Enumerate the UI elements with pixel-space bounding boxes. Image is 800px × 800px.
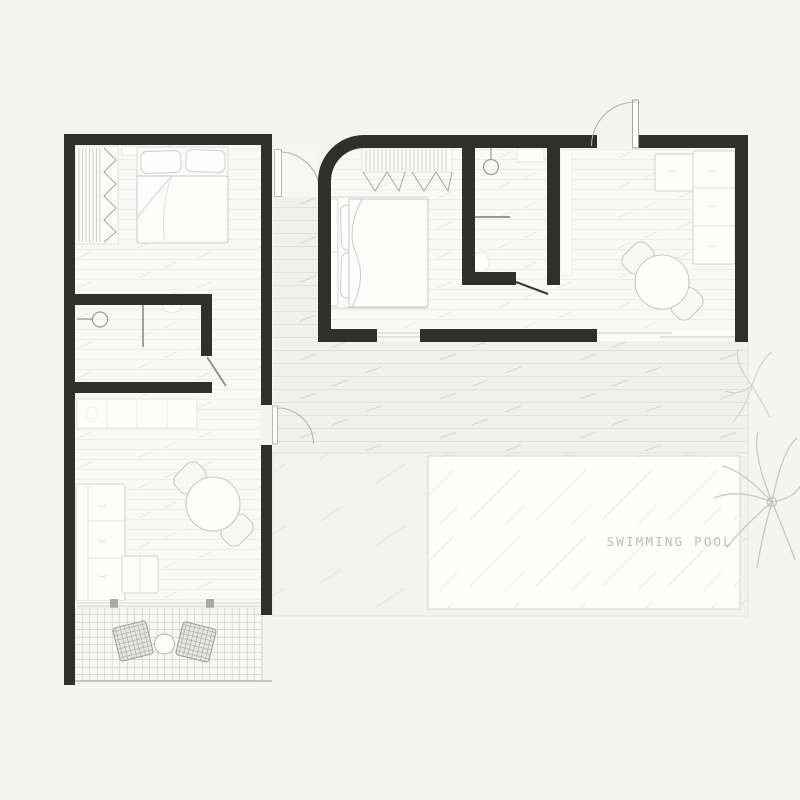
entrance-door <box>592 100 639 148</box>
pillow <box>141 150 182 173</box>
wall-bottom-seg <box>420 329 597 342</box>
rattan-chair <box>112 620 153 661</box>
right-wing <box>318 100 748 342</box>
bathroom-wall-right <box>201 294 212 356</box>
duvet <box>349 199 428 307</box>
round-dining-table <box>186 477 240 531</box>
hanging-clothes-lines <box>366 149 446 171</box>
bathroom-wall-right <box>547 148 560 285</box>
door-opening <box>597 134 637 148</box>
pool-terrace: SWIMMING POOL <box>273 450 748 616</box>
wall-right-lower <box>261 445 272 615</box>
floor-plan-canvas: SWIMMING POOL <box>0 0 800 800</box>
washbasin <box>517 149 544 162</box>
tall-cabinet <box>560 150 572 275</box>
wall-top <box>64 134 272 145</box>
sofa-body <box>693 151 735 264</box>
left-bedroom-wardrobe <box>75 146 118 244</box>
round-dining-table <box>635 255 689 309</box>
wall-corner-block <box>735 329 748 342</box>
pillow <box>186 149 226 172</box>
wall-left <box>318 181 331 342</box>
bathroom-wall-left <box>462 148 475 285</box>
bathroom-wall-top <box>75 294 212 305</box>
wall-bottom-seg <box>318 329 377 342</box>
wall-top-left-seg <box>362 135 597 148</box>
bathroom-wall-bottom <box>75 382 212 393</box>
wall-top-right-seg <box>637 135 748 148</box>
kitchen-counter <box>77 399 197 428</box>
wall-right-upper <box>261 134 272 405</box>
rattan-chair <box>175 621 216 662</box>
swimming-pool-label: SWIMMING POOL <box>607 534 733 549</box>
right-bedroom-bed <box>325 197 428 308</box>
swimming-pool <box>428 456 740 609</box>
sofa-chaise <box>655 154 693 191</box>
wall-right <box>735 135 748 342</box>
bathroom-wall-bottom <box>462 272 516 285</box>
door-leaf <box>273 406 278 444</box>
hanging-clothes-lines <box>79 148 100 242</box>
door-leaf <box>275 150 282 197</box>
window-mullion <box>206 599 214 608</box>
window-mullion <box>110 599 118 608</box>
toilet <box>473 252 489 272</box>
door-leaf <box>633 100 639 148</box>
patio <box>75 608 272 681</box>
wall-left <box>64 134 75 685</box>
floor-plan-drawing: SWIMMING POOL <box>0 0 800 800</box>
patio-side-table <box>155 634 175 654</box>
left-bedroom-bed <box>137 147 228 243</box>
